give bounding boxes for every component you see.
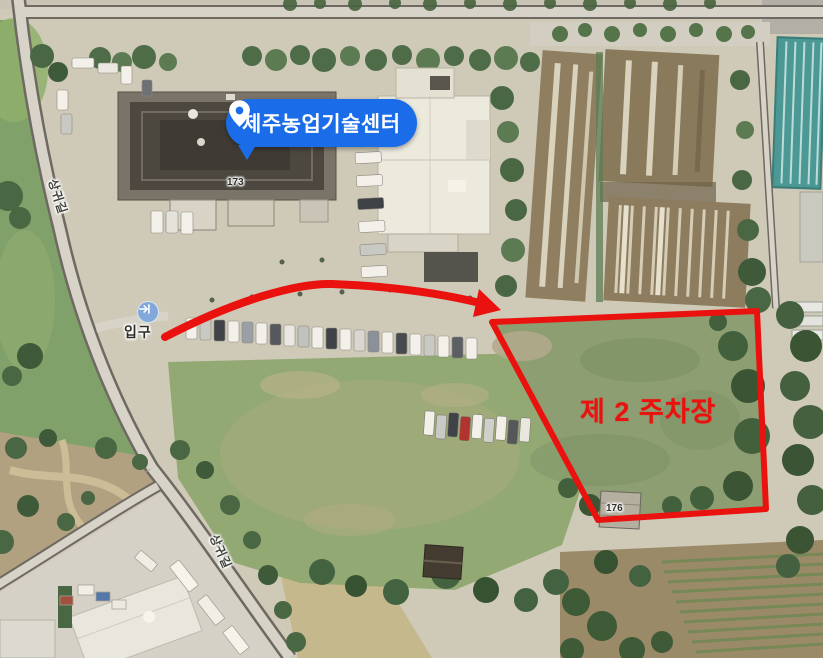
right-building: [800, 192, 823, 262]
place-marker-tail: [238, 145, 256, 160]
entrance-label: 입구: [124, 322, 152, 342]
parking-area-annotation: 제 2 주차장: [580, 390, 716, 429]
hut: [423, 545, 463, 580]
building-number-176: 176: [606, 503, 623, 514]
building-number-173: 173: [227, 177, 244, 188]
entrance-marker-icon[interactable]: [137, 301, 159, 323]
map-viewport[interactable]: 제주농업기술센터 제 2 주차장 입구 173 176 상귀길 상귀길: [0, 0, 823, 658]
greenhouse-teal: [772, 37, 823, 189]
place-marker-pill[interactable]: 제주농업기술센터: [226, 99, 417, 147]
place-name: 제주농업기술센터: [242, 108, 401, 138]
